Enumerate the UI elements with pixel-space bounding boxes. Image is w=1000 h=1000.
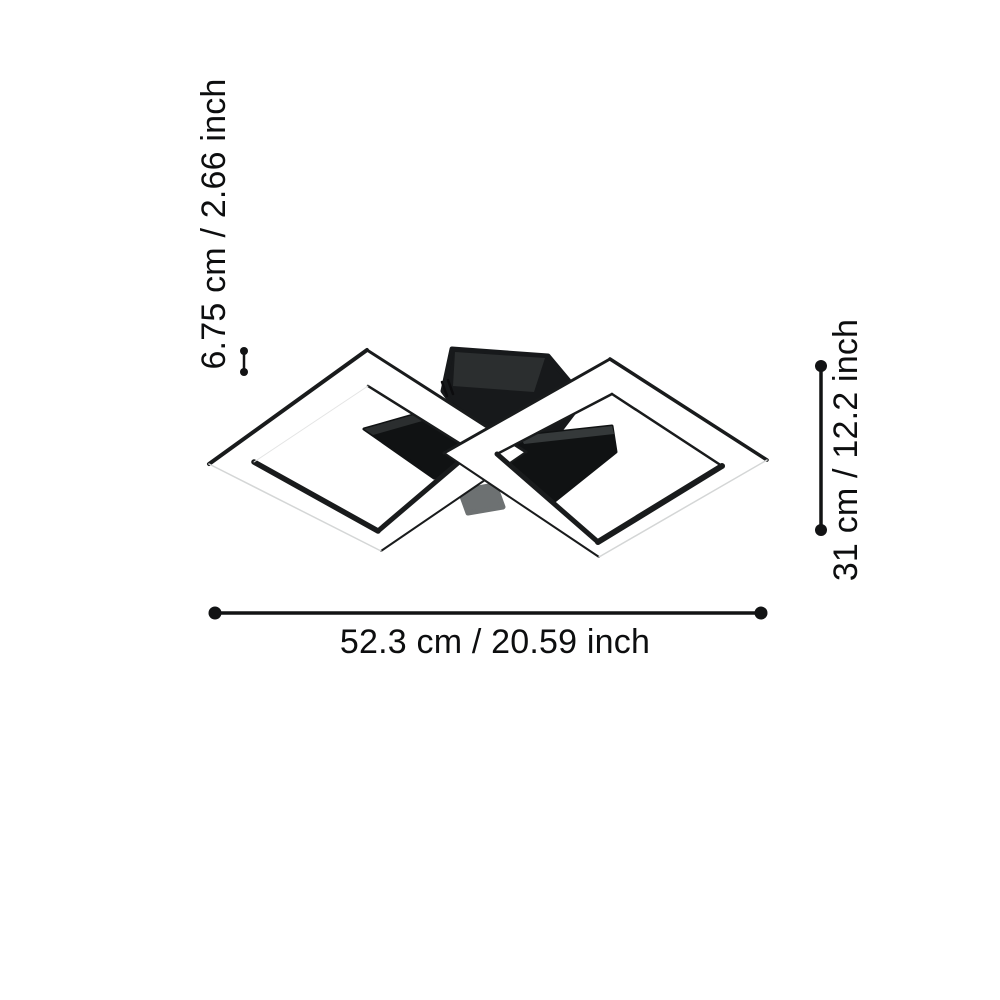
width-dimension-label: 52.3 cm / 20.59 inch (245, 622, 745, 664)
dimension-diagram: 6.75 cm / 2.66 inch 31 cm / 12.2 inch 52… (0, 0, 1000, 1000)
depth-dimension-marker (240, 347, 248, 376)
depth-dimension-label: 6.75 cm / 2.66 inch (194, 54, 234, 394)
height-dimension-label: 31 cm / 12.2 inch (826, 300, 866, 600)
width-dimension-line (209, 607, 768, 620)
